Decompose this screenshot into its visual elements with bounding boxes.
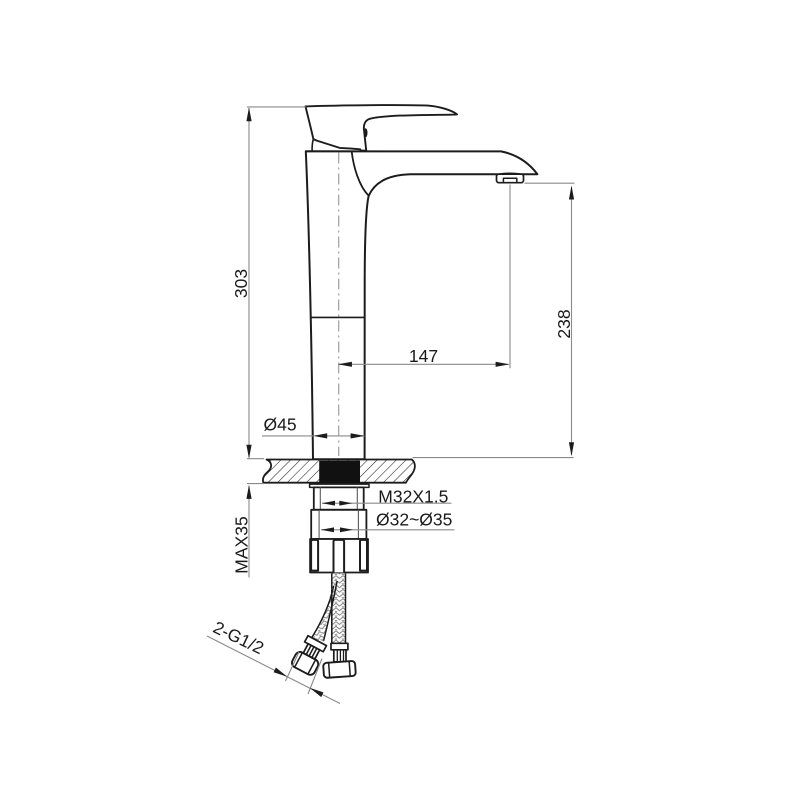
svg-text:MAX35: MAX35: [232, 516, 252, 573]
svg-text:238: 238: [554, 309, 574, 338]
svg-text:147: 147: [409, 346, 438, 366]
svg-text:Ø32~Ø35: Ø32~Ø35: [376, 510, 452, 530]
svg-text:M32X1.5: M32X1.5: [378, 486, 448, 506]
svg-text:303: 303: [231, 269, 251, 298]
svg-text:Ø45: Ø45: [264, 415, 297, 435]
